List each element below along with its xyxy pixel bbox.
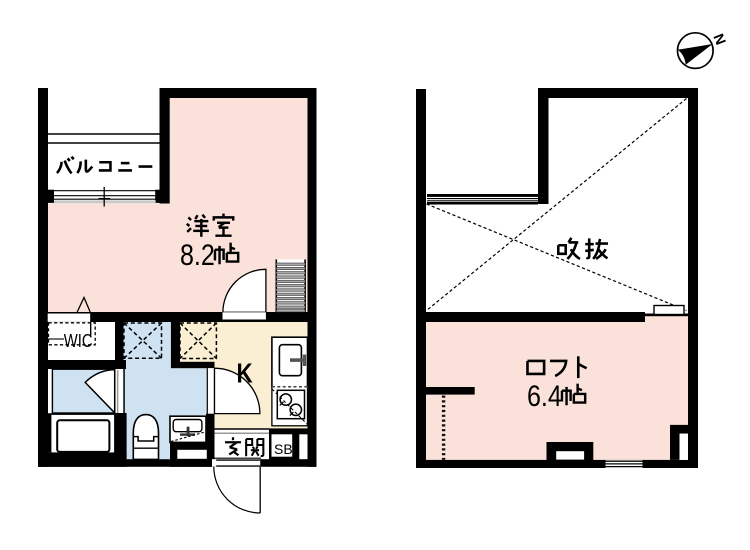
svg-text:6.4: 6.4 [527, 379, 562, 412]
svg-text:K: K [237, 358, 254, 389]
svg-text:8.2: 8.2 [180, 238, 215, 271]
svg-text:WIC: WIC [64, 331, 93, 352]
svg-text:SB: SB [274, 441, 293, 457]
